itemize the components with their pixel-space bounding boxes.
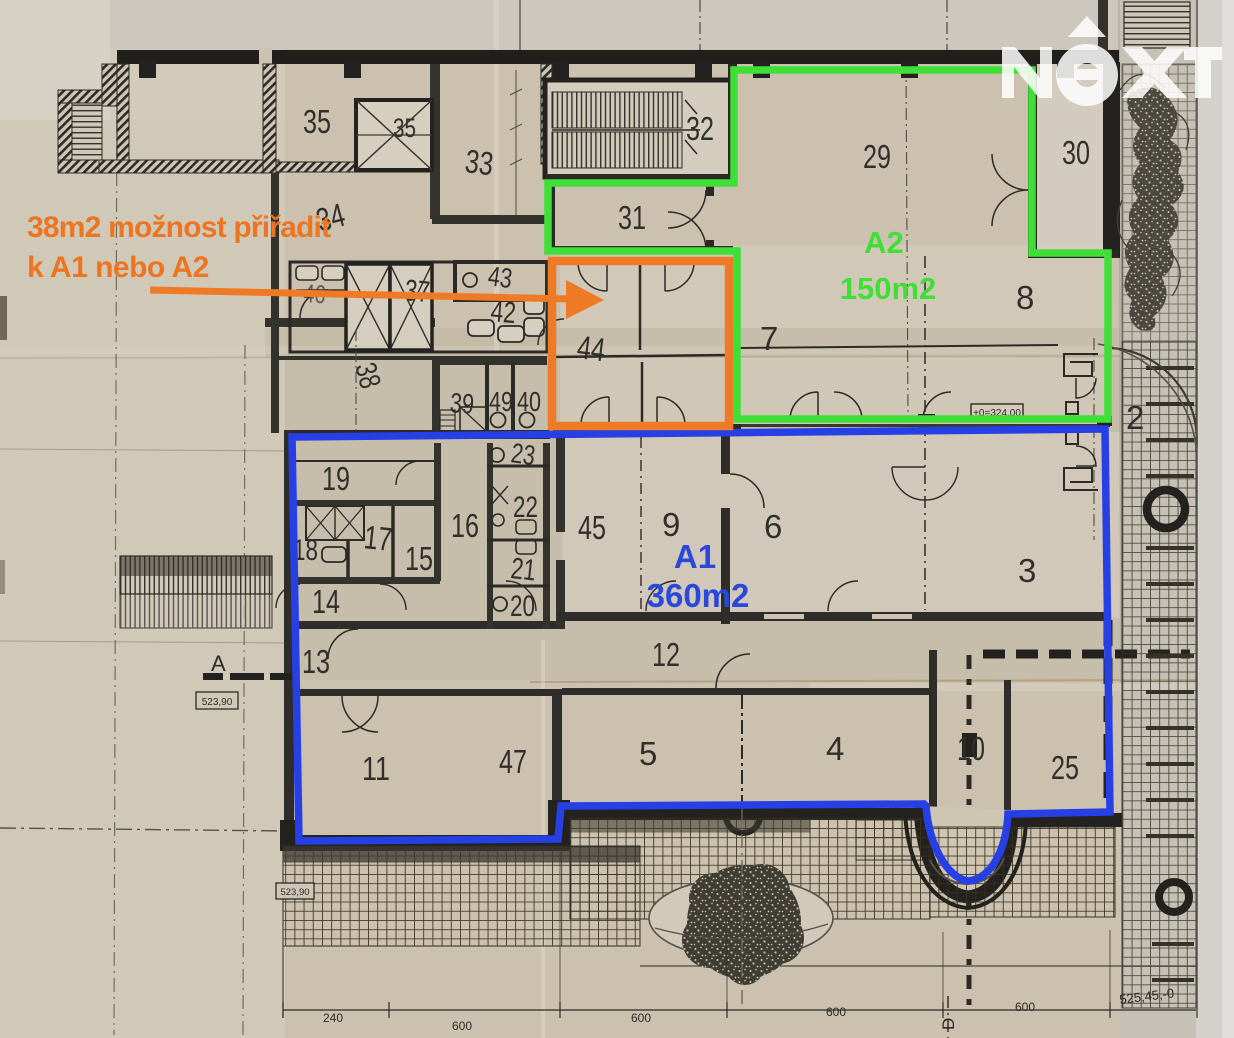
svg-text:44: 44 xyxy=(575,328,607,368)
svg-text:7: 7 xyxy=(760,320,778,357)
svg-text:360m2: 360m2 xyxy=(647,577,750,614)
svg-text:40: 40 xyxy=(517,386,541,417)
svg-text:5: 5 xyxy=(639,735,657,772)
svg-text:29: 29 xyxy=(863,138,891,175)
svg-text:12: 12 xyxy=(652,636,680,673)
svg-text:35: 35 xyxy=(303,103,331,140)
svg-text:33: 33 xyxy=(463,142,495,182)
svg-text:39: 39 xyxy=(449,387,475,420)
svg-text:47: 47 xyxy=(499,743,527,780)
svg-text:600: 600 xyxy=(1015,1000,1035,1014)
svg-text:49: 49 xyxy=(489,386,513,417)
svg-text:4: 4 xyxy=(826,730,844,767)
svg-text:15: 15 xyxy=(405,540,433,577)
svg-text:150m2: 150m2 xyxy=(840,271,937,306)
svg-text:D: D xyxy=(939,1018,958,1030)
svg-text:17: 17 xyxy=(362,518,394,558)
svg-text:6: 6 xyxy=(764,508,782,545)
svg-text:3: 3 xyxy=(1018,552,1036,589)
svg-text:45: 45 xyxy=(578,509,606,546)
svg-text:35: 35 xyxy=(393,113,416,143)
svg-text:21: 21 xyxy=(509,552,537,587)
svg-text:523,90: 523,90 xyxy=(280,887,309,898)
svg-text:20: 20 xyxy=(510,590,535,623)
svg-text:22: 22 xyxy=(513,491,538,524)
svg-text:37: 37 xyxy=(403,274,431,309)
svg-text:A: A xyxy=(211,651,226,676)
svg-text:8: 8 xyxy=(1016,279,1034,316)
svg-text:38m2 možnost přiřadit: 38m2 možnost přiřadit xyxy=(27,211,331,244)
svg-text:k A1 nebo A2: k A1 nebo A2 xyxy=(27,251,209,284)
svg-text:43: 43 xyxy=(486,260,514,294)
svg-text:31: 31 xyxy=(618,199,646,236)
svg-text:14: 14 xyxy=(312,583,340,620)
svg-text:240: 240 xyxy=(323,1011,343,1025)
svg-text:523,90: 523,90 xyxy=(202,697,233,708)
svg-text:23: 23 xyxy=(509,437,537,471)
svg-text:600: 600 xyxy=(452,1019,472,1033)
svg-text:13: 13 xyxy=(302,643,330,680)
svg-text:30: 30 xyxy=(1062,134,1090,171)
svg-text:19: 19 xyxy=(322,460,350,497)
svg-text:600: 600 xyxy=(826,1005,846,1019)
svg-text:A2: A2 xyxy=(864,225,904,260)
svg-text:16: 16 xyxy=(451,507,479,544)
svg-text:A1: A1 xyxy=(674,538,716,575)
svg-text:600: 600 xyxy=(631,1011,651,1025)
svg-text:10: 10 xyxy=(957,730,985,767)
svg-text:32: 32 xyxy=(686,110,714,147)
svg-text:2: 2 xyxy=(1126,399,1144,436)
svg-text:25: 25 xyxy=(1051,749,1079,786)
svg-text:11: 11 xyxy=(362,750,390,787)
